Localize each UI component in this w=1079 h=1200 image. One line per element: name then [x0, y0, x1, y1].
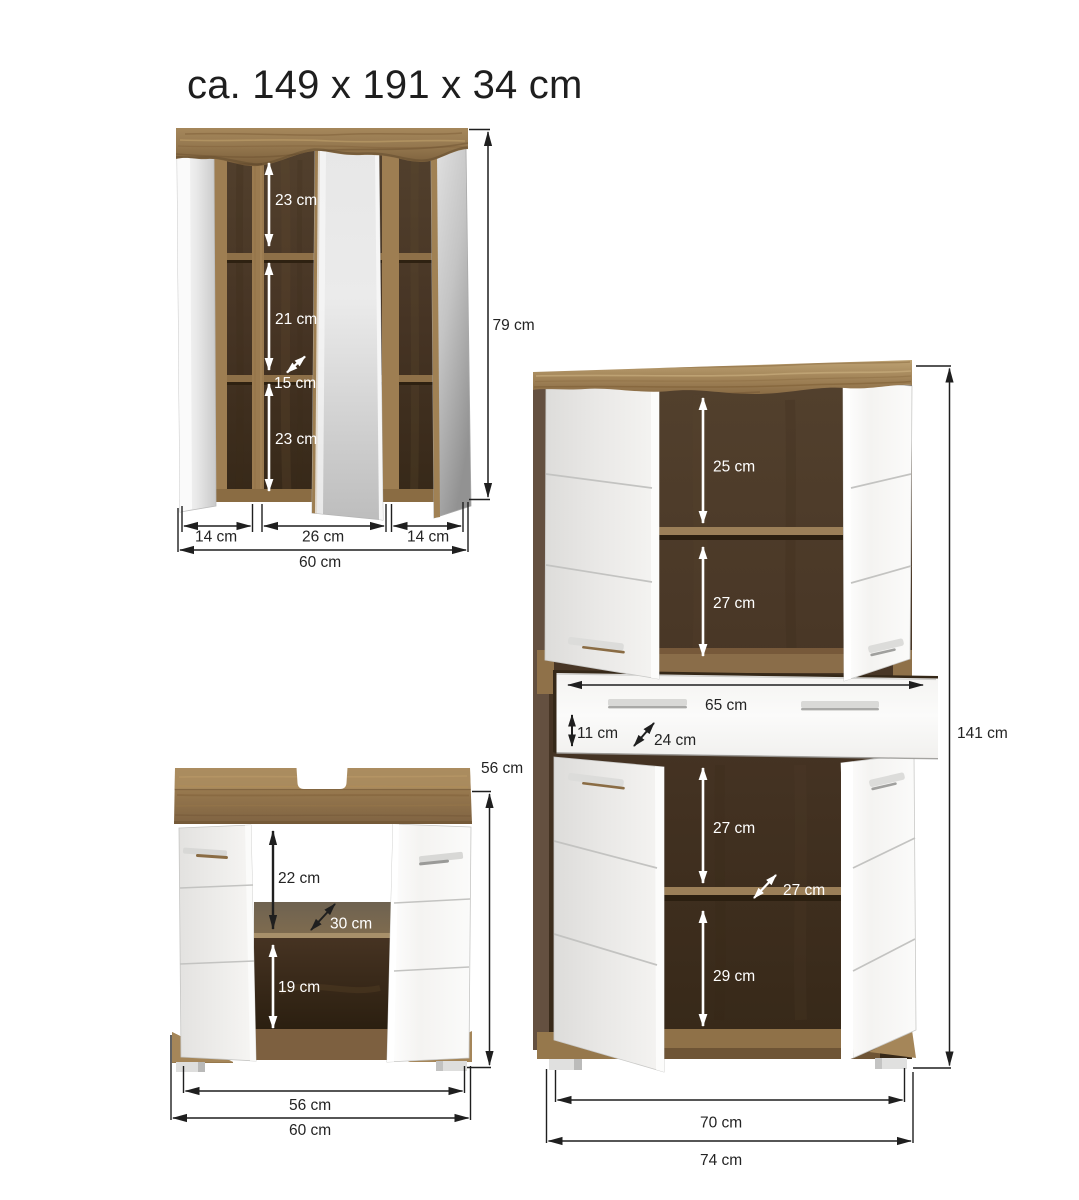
svg-text:65 cm: 65 cm [705, 697, 747, 714]
svg-text:11 cm: 11 cm [577, 725, 618, 742]
svg-text:27 cm: 27 cm [783, 882, 825, 899]
svg-text:60 cm: 60 cm [289, 1122, 331, 1139]
svg-text:56 cm: 56 cm [481, 760, 523, 777]
svg-text:27 cm: 27 cm [713, 595, 755, 612]
svg-text:70 cm: 70 cm [700, 1115, 742, 1132]
svg-text:19 cm: 19 cm [278, 979, 320, 996]
svg-text:74 cm: 74 cm [700, 1152, 742, 1169]
svg-text:27 cm: 27 cm [713, 820, 755, 837]
svg-text:60 cm: 60 cm [299, 554, 341, 571]
svg-text:23 cm: 23 cm [275, 192, 317, 209]
svg-text:56 cm: 56 cm [289, 1097, 331, 1114]
svg-text:30 cm: 30 cm [330, 916, 372, 933]
svg-text:ca. 149 x 191 x 34 cm: ca. 149 x 191 x 34 cm [187, 63, 583, 107]
svg-text:22 cm: 22 cm [278, 870, 320, 887]
svg-text:24 cm: 24 cm [654, 732, 696, 749]
svg-text:14 cm: 14 cm [195, 529, 237, 546]
svg-text:23 cm: 23 cm [275, 431, 317, 448]
svg-text:15 cm: 15 cm [274, 375, 316, 392]
svg-text:14 cm: 14 cm [407, 529, 449, 546]
svg-text:26 cm: 26 cm [302, 529, 344, 546]
svg-text:29 cm: 29 cm [713, 968, 755, 985]
svg-text:21 cm: 21 cm [275, 311, 317, 328]
svg-text:141 cm: 141 cm [957, 725, 1008, 742]
svg-text:79 cm: 79 cm [493, 317, 535, 334]
svg-text:25 cm: 25 cm [713, 459, 755, 476]
